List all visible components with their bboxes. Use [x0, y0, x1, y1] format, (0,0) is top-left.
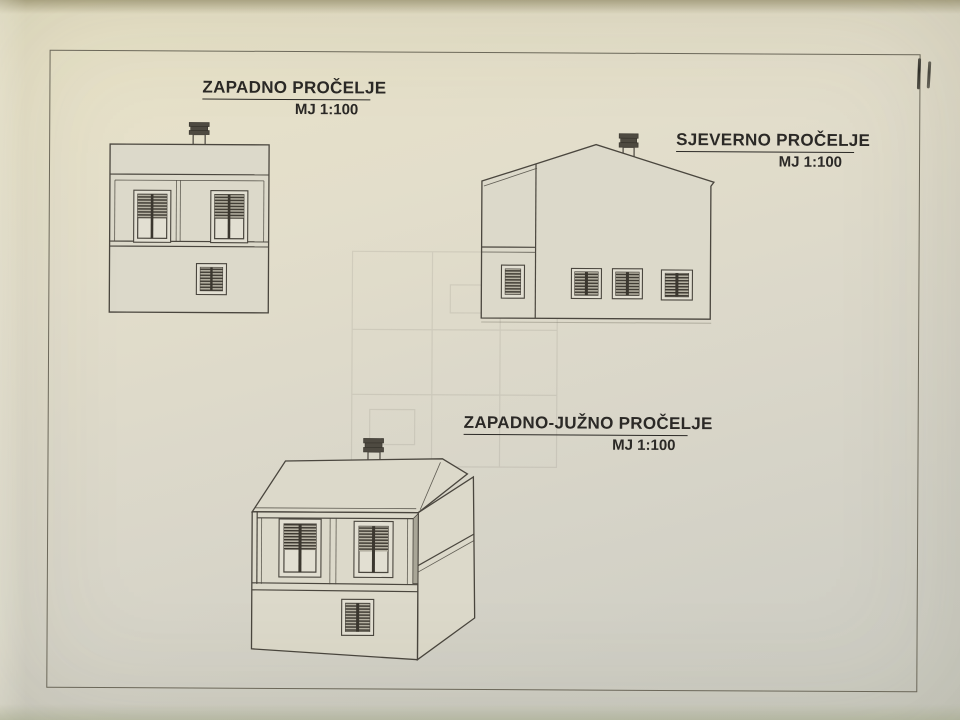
scale-west-south-elevation: MJ 1:100 — [464, 436, 688, 454]
west-elevation-drawing — [100, 113, 281, 324]
window-ground — [196, 264, 226, 295]
window-upper-left — [134, 190, 171, 242]
window-upper-right — [354, 521, 393, 577]
drawing-sheet: ZAPADNO PROČELJE MJ 1:100 SJEVERNO PROČE… — [0, 0, 960, 720]
title-block-west-south-elevation: ZAPADNO-JUŽNO PROČELJE MJ 1:100 — [464, 413, 688, 454]
window-upper-right — [211, 191, 248, 243]
title-west-elevation: ZAPADNO PROČELJE — [202, 78, 370, 101]
title-block-west-elevation: ZAPADNO PROČELJE MJ 1:100 — [202, 78, 370, 119]
chimney — [363, 438, 383, 461]
staple-mark-2 — [927, 61, 931, 88]
desk-edge-bottom — [0, 704, 960, 720]
photo-of-architectural-sheet: ZAPADNO PROČELJE MJ 1:100 SJEVERNO PROČE… — [0, 0, 960, 720]
window-ground — [342, 599, 374, 635]
title-west-south-elevation: ZAPADNO-JUŽNO PROČELJE — [464, 413, 688, 436]
window-3 — [661, 270, 692, 300]
window-1 — [571, 268, 601, 298]
window-upper-left — [279, 519, 321, 577]
window-2 — [612, 269, 642, 299]
vent-louver — [501, 265, 524, 298]
staple-mark-1 — [917, 58, 921, 89]
north-elevation-drawing — [465, 125, 726, 331]
chimney — [189, 122, 209, 144]
west-south-axonometric-drawing — [243, 434, 489, 670]
